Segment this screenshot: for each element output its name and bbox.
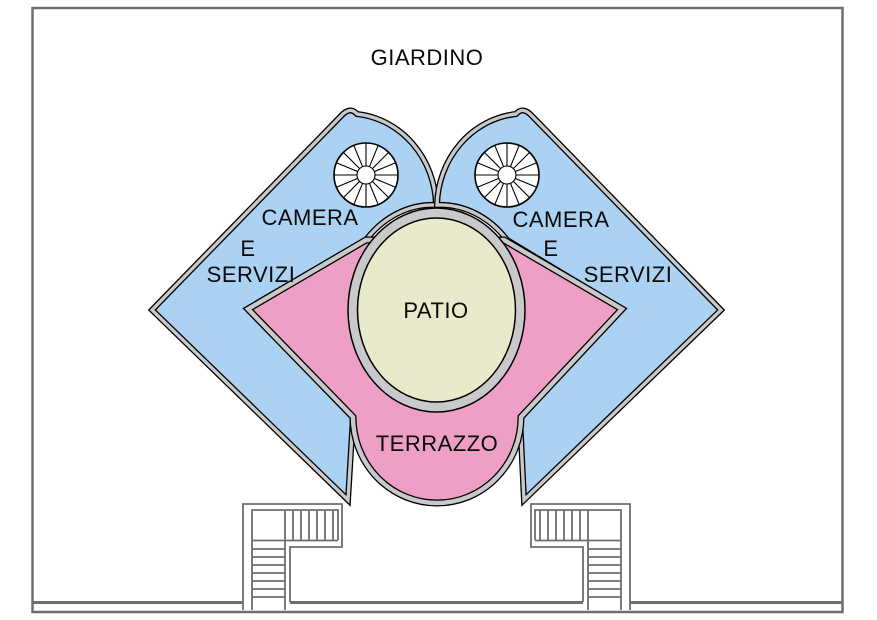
garden-label: GIARDINO <box>371 45 484 70</box>
left-wing-label-camera: CAMERA <box>261 205 358 230</box>
right-wing-label-e: E <box>543 236 558 261</box>
stair-right-top-treads <box>540 510 588 540</box>
left-wing-label-e: E <box>240 236 255 261</box>
floor-plan-drawing: GIARDINO CAMERA E SERVIZI CAMERA E SERVI… <box>0 0 877 620</box>
right-wing-label-camera: CAMERA <box>512 207 609 232</box>
spiral-stair-right-newel <box>498 166 516 184</box>
spiral-staircase-left-icon <box>334 143 398 207</box>
stair-right-down-treads <box>588 549 621 597</box>
right-wing-label-servizi: SERVIZI <box>584 262 673 287</box>
stair-left-down-treads <box>252 549 285 597</box>
terrace-label: TERRAZZO <box>376 431 499 456</box>
left-wing-label-servizi: SERVIZI <box>207 262 296 287</box>
stair-left-top-treads <box>285 510 333 540</box>
spiral-stair-left-newel <box>357 166 375 184</box>
floor-plan-canvas: GIARDINO CAMERA E SERVIZI CAMERA E SERVI… <box>0 0 877 620</box>
patio-label: PATIO <box>403 298 468 323</box>
spiral-staircase-right-icon <box>475 143 539 207</box>
